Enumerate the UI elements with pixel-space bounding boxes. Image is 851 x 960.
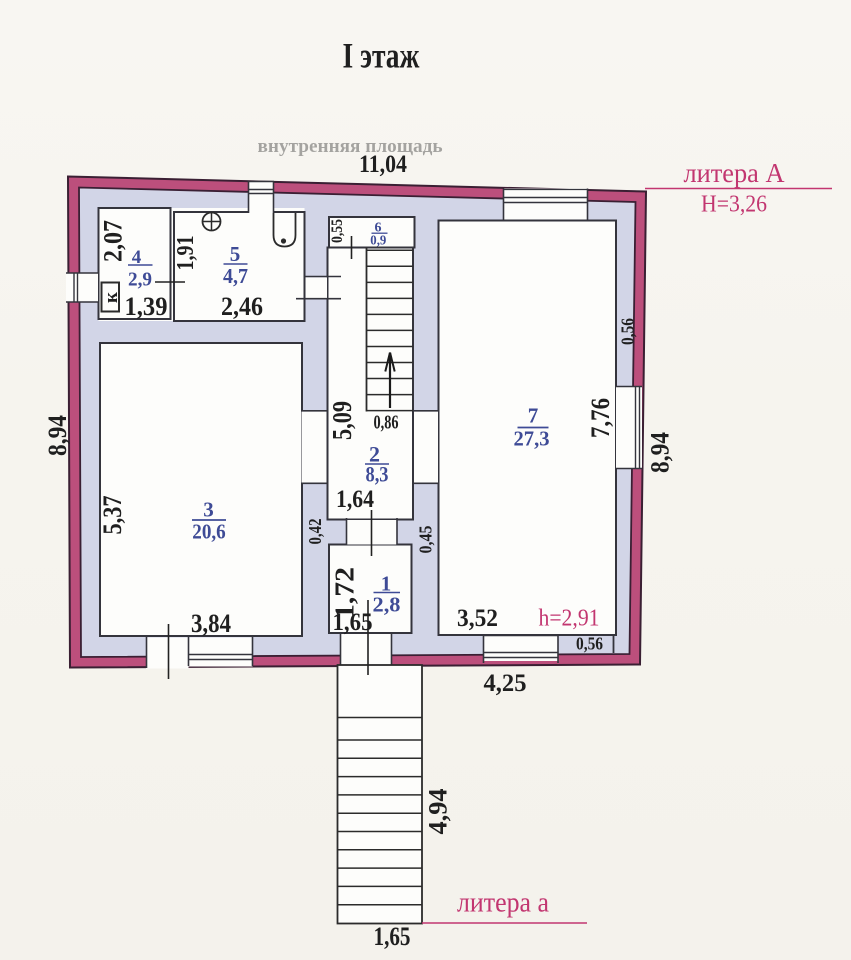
svg-text:2,8: 2,8 xyxy=(373,593,401,617)
svg-text:0,9: 0,9 xyxy=(370,234,386,249)
svg-text:1,65: 1,65 xyxy=(333,609,373,636)
svg-text:литера А: литера А xyxy=(684,158,785,188)
svg-text:3,52: 3,52 xyxy=(457,605,498,632)
svg-text:2,9: 2,9 xyxy=(128,269,152,291)
svg-text:20,6: 20,6 xyxy=(192,520,226,544)
svg-text:0,55: 0,55 xyxy=(329,219,346,243)
svg-text:4,25: 4,25 xyxy=(484,670,527,697)
svg-text:2,46: 2,46 xyxy=(221,292,263,321)
svg-text:7,76: 7,76 xyxy=(586,398,615,438)
svg-text:7: 7 xyxy=(528,404,539,428)
svg-text:0,56: 0,56 xyxy=(618,318,638,345)
svg-text:0,45: 0,45 xyxy=(416,526,436,554)
svg-text:I этаж: I этаж xyxy=(343,36,421,76)
svg-text:3,84: 3,84 xyxy=(191,609,231,638)
svg-text:к: к xyxy=(101,292,122,303)
svg-text:4,94: 4,94 xyxy=(424,789,453,835)
svg-text:2,07: 2,07 xyxy=(99,220,128,262)
svg-text:1,65: 1,65 xyxy=(374,922,411,951)
svg-text:1,39: 1,39 xyxy=(125,292,168,321)
svg-text:8,94: 8,94 xyxy=(646,432,675,473)
svg-text:8,94: 8,94 xyxy=(43,415,72,456)
svg-text:27,3: 27,3 xyxy=(514,427,550,451)
svg-text:0,42: 0,42 xyxy=(305,519,325,545)
svg-text:8,3: 8,3 xyxy=(366,462,389,487)
svg-text:11,04: 11,04 xyxy=(359,151,407,178)
svg-text:3: 3 xyxy=(203,498,214,522)
svg-text:5: 5 xyxy=(230,242,241,266)
svg-text:h=2,91: h=2,91 xyxy=(539,606,600,632)
svg-text:литера а: литера а xyxy=(457,888,550,919)
svg-text:1,91: 1,91 xyxy=(173,236,199,271)
svg-text:4,7: 4,7 xyxy=(223,264,248,288)
svg-text:1,64: 1,64 xyxy=(336,486,374,513)
svg-text:5,37: 5,37 xyxy=(98,496,127,535)
svg-text:внутренняя площадь: внутренняя площадь xyxy=(258,136,443,157)
svg-text:0,56: 0,56 xyxy=(576,634,603,654)
svg-text:0,86: 0,86 xyxy=(374,412,399,434)
svg-text:H=3,26: H=3,26 xyxy=(701,192,767,218)
svg-text:5,09: 5,09 xyxy=(327,401,357,440)
